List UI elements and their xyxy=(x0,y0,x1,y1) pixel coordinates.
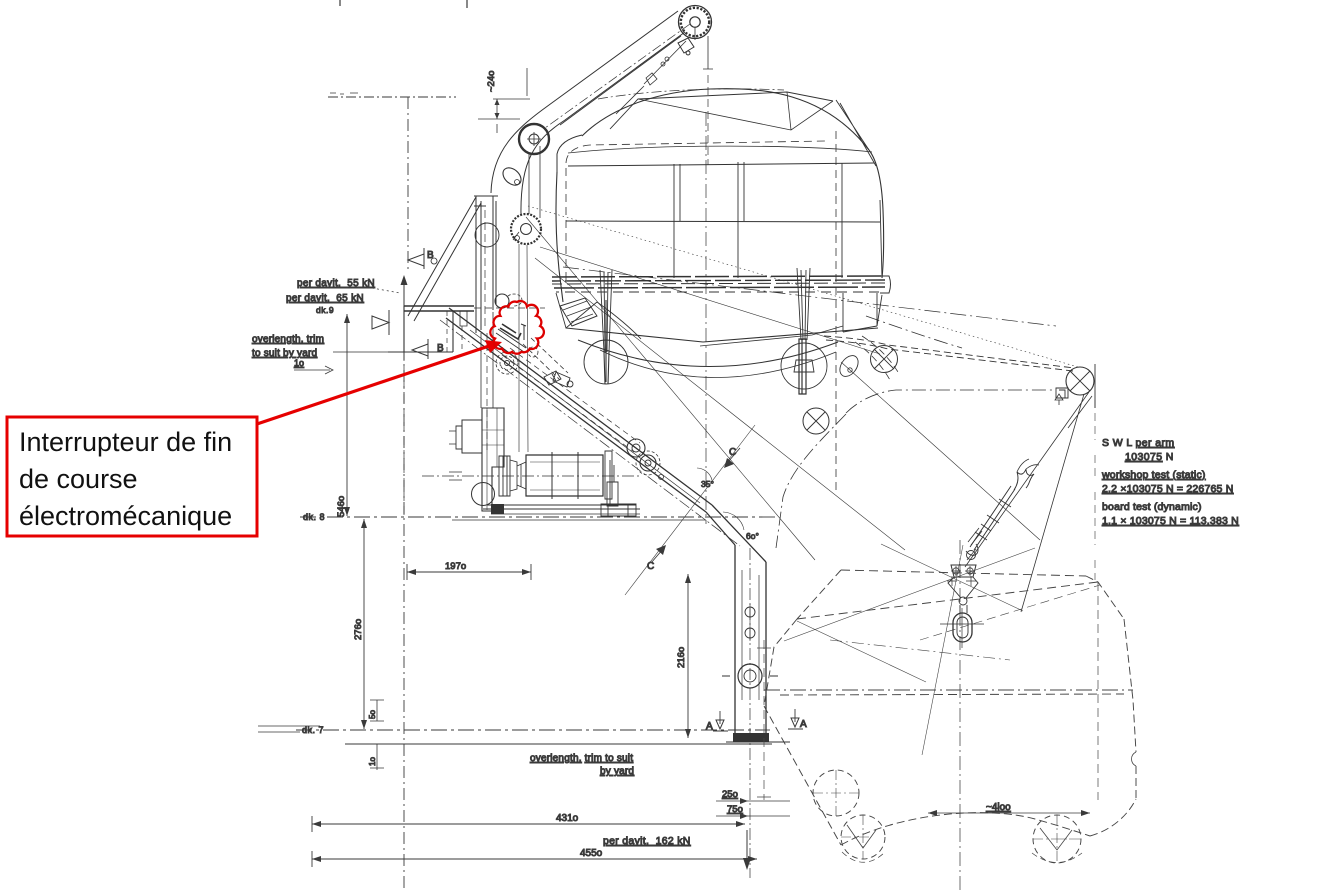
svg-text:workshop test (static): workshop test (static) xyxy=(1101,469,1206,481)
svg-text:25o: 25o xyxy=(722,789,738,800)
svg-text:Interrupteur de fin: Interrupteur de fin xyxy=(19,427,232,457)
svg-text:by yard: by yard xyxy=(600,766,634,777)
svg-text:A: A xyxy=(706,721,713,732)
svg-text:dk. 8: dk. 8 xyxy=(303,512,325,522)
svg-text:dk. 7: dk. 7 xyxy=(302,725,324,735)
svg-text:per davit. 65 kN: per davit. 65 kN xyxy=(286,293,364,304)
svg-text:1,1 × 103075 N = 113.383 N: 1,1 × 103075 N = 113.383 N xyxy=(1102,515,1239,527)
svg-text:276o: 276o xyxy=(353,619,364,640)
svg-text:électromécanique: électromécanique xyxy=(19,501,232,531)
svg-text:C: C xyxy=(647,561,654,572)
svg-text:1o: 1o xyxy=(294,358,304,368)
svg-text:overlength, trim: overlength, trim xyxy=(252,334,324,345)
svg-text:1o: 1o xyxy=(368,757,377,766)
svg-text:B: B xyxy=(427,250,434,261)
svg-text:A: A xyxy=(800,719,807,730)
svg-text:5o: 5o xyxy=(368,710,377,719)
svg-text:to suit by yard: to suit by yard xyxy=(252,348,317,359)
svg-text:546o: 546o xyxy=(336,496,347,517)
svg-text:216o: 216o xyxy=(676,647,687,668)
svg-text:S W L per arm: S W L per arm xyxy=(1102,437,1175,449)
svg-text:~24o: ~24o xyxy=(486,71,497,92)
svg-text:2,2 ×103075 N = 226765 N: 2,2 ×103075 N = 226765 N xyxy=(1102,483,1234,495)
svg-text:dk.9: dk.9 xyxy=(316,305,334,315)
svg-text:455o: 455o xyxy=(580,848,603,859)
svg-text:103075 N: 103075 N xyxy=(1125,451,1174,463)
svg-text:per davit. 162 kN: per davit. 162 kN xyxy=(603,835,691,847)
svg-text:431o: 431o xyxy=(556,813,579,824)
svg-text:197o: 197o xyxy=(445,561,466,572)
svg-text:6o°: 6o° xyxy=(746,531,759,541)
svg-text:overlength, trim to suit: overlength, trim to suit xyxy=(530,753,633,764)
svg-text:per davit. 55 kN: per davit. 55 kN xyxy=(297,278,375,289)
svg-text:board test (dynamic): board test (dynamic) xyxy=(1102,501,1202,513)
svg-text:~4loo: ~4loo xyxy=(986,802,1011,813)
svg-text:35°: 35° xyxy=(701,479,714,489)
svg-text:de course: de course xyxy=(19,464,138,494)
